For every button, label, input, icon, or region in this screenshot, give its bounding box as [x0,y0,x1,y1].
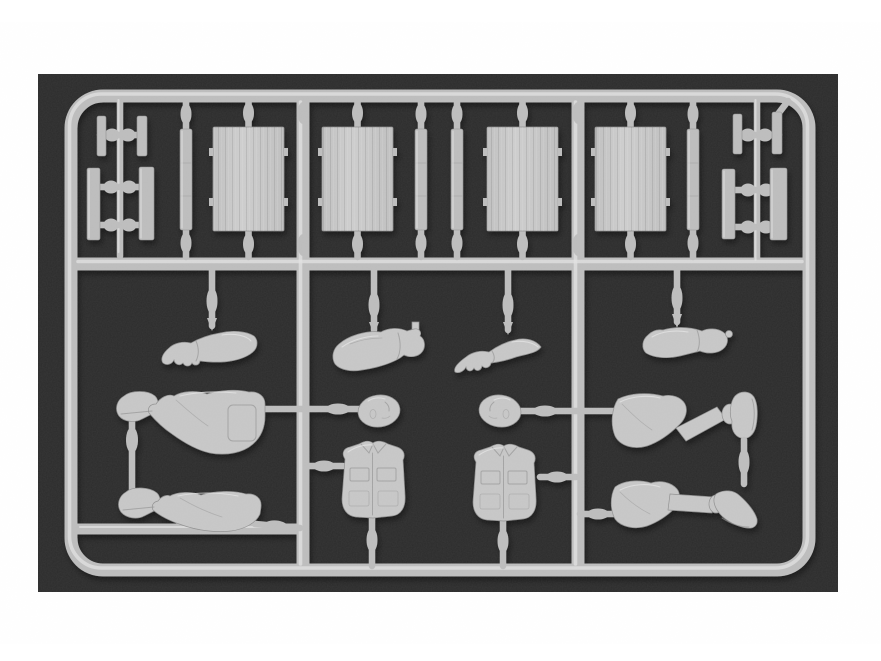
sprue-illustration [0,0,881,661]
model-sprue-photo [0,0,881,661]
photo-grain-overlay [38,74,838,592]
